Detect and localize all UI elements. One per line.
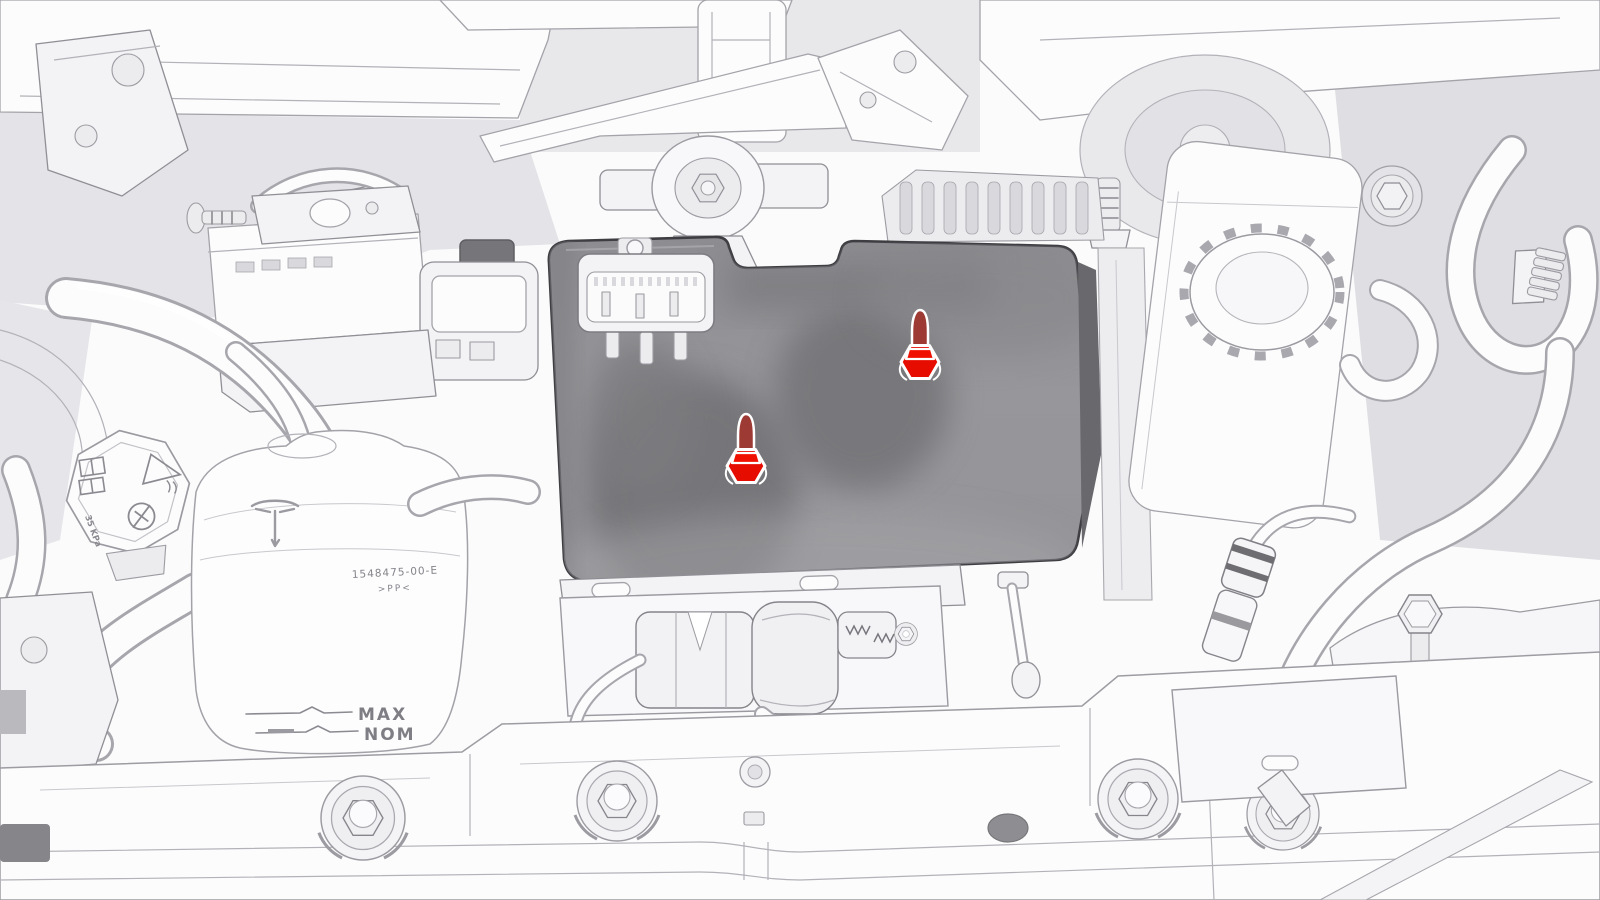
beam-dark-slot [0,824,50,862]
beam-bolt-3 [1096,759,1180,839]
coolant-reservoir-body [192,431,468,754]
engine-bay-diagram: 1548475-00-E >PP< MAX NOM 35 KPa [0,0,1600,900]
fender-wall-bolt [1362,166,1422,226]
beam-clip [744,812,764,825]
reservoir-nom-label: NOM [364,725,416,745]
beam-bolt-2 [575,761,659,841]
reservoir-material-code: >PP< [378,583,412,595]
beam-dark-grommet [988,814,1028,842]
reservoir-max-label: MAX [358,705,407,725]
heatsink-fin-block [882,170,1104,242]
beam-bolt-1 [319,776,407,860]
